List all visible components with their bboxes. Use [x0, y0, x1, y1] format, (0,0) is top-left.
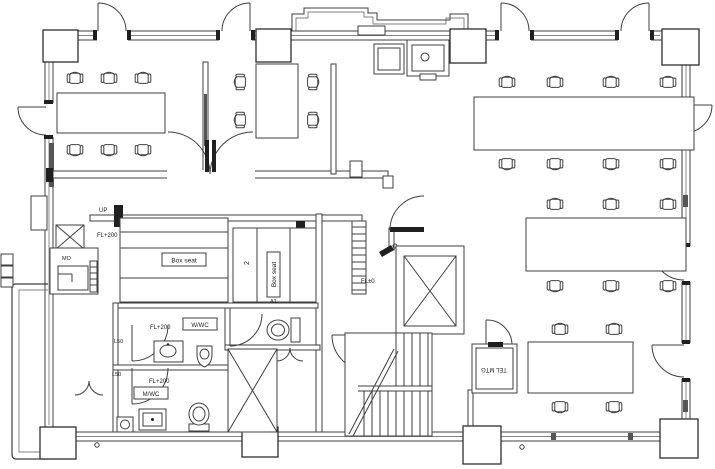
label-box-seat-v: Box seat	[271, 262, 278, 287]
wall-mid-right	[253, 171, 388, 178]
chair-icon	[499, 159, 515, 170]
label-women-wc: W/WC	[191, 323, 209, 329]
chair-icon	[135, 72, 151, 83]
chair-icon	[606, 323, 622, 334]
chair-icon	[552, 323, 568, 334]
chair-icon	[547, 159, 563, 170]
label-l50-upper: L50	[114, 339, 123, 345]
column	[662, 29, 699, 65]
column	[450, 29, 486, 63]
column	[660, 419, 698, 458]
chair-icon	[660, 281, 676, 292]
exterior-ledge	[1, 278, 13, 287]
meeting-room-1	[57, 72, 165, 156]
door-jamb	[46, 168, 53, 182]
door-swing-icon	[230, 314, 262, 346]
label-service-box: MO	[62, 256, 72, 262]
floor-plan-drawing: UP FL+200 Box seat Box seat 2 A1 FL+200 …	[0, 0, 715, 469]
chair-icon	[547, 76, 563, 87]
chair-icon	[499, 76, 515, 87]
door-swing-icon	[390, 196, 424, 232]
toilet-icon	[267, 318, 300, 342]
service-shaft	[228, 349, 277, 432]
service-box	[50, 248, 98, 294]
balcony-left	[1, 196, 48, 459]
wall-wc-top	[113, 303, 318, 308]
sink-icon	[154, 341, 183, 362]
double-door-swing-icon	[168, 132, 253, 174]
label-tel-mtg: TEL MTG	[481, 366, 507, 372]
meeting-room-2	[234, 64, 362, 177]
bottom-wall-mullion	[551, 433, 556, 440]
wall-mid-left	[53, 171, 168, 178]
kitchenette-unit	[58, 266, 88, 290]
sink-icon	[139, 409, 166, 430]
partition-glazing	[204, 94, 207, 146]
exterior-ledge	[1, 254, 13, 265]
chair-icon	[606, 402, 622, 413]
chair-icon	[660, 159, 676, 170]
chair-icon	[660, 198, 676, 209]
open-office-table-1	[474, 76, 694, 170]
label-fl200-entry: FL+200	[97, 233, 118, 239]
label-l50-lower: L50	[112, 372, 121, 378]
door-jamb	[488, 342, 503, 347]
chair-icon	[101, 72, 117, 83]
exterior-ledge	[1, 266, 13, 277]
wall-corridor-west	[316, 214, 322, 432]
urinal-icon	[197, 346, 212, 367]
door-swing-icon	[486, 320, 512, 345]
label-box-seat-h: Box seat	[171, 258, 196, 265]
wall-jog	[383, 176, 393, 188]
label-fl200-women: FL+200	[150, 325, 171, 331]
wall-mwc-top	[113, 365, 233, 370]
counter	[358, 26, 385, 35]
chair-icon	[603, 159, 619, 170]
chair-icon	[603, 198, 619, 209]
chair-icon	[308, 74, 319, 90]
chair-icon	[67, 72, 83, 83]
mop-sink-icon	[117, 417, 133, 432]
chair-icon	[552, 402, 568, 413]
meeting-table-icon	[57, 93, 165, 133]
bottom-wall-mullion	[628, 433, 633, 440]
left-wall-bump	[31, 196, 47, 230]
door-closer-hardware	[379, 245, 394, 257]
column	[40, 427, 76, 459]
chair-icon	[234, 74, 245, 90]
chair-icon	[547, 281, 563, 292]
right-wall-mullion	[683, 400, 688, 412]
meeting-table-icon	[526, 218, 686, 271]
open-office-table-3	[528, 323, 633, 413]
stairwell	[345, 333, 432, 436]
open-office-table-2	[526, 198, 686, 292]
meeting-table-icon	[474, 97, 694, 150]
wall-room2-right	[331, 64, 336, 174]
label-up: UP	[99, 208, 107, 214]
chair-icon	[234, 112, 245, 128]
meeting-table-icon	[256, 64, 298, 138]
chair-icon	[603, 76, 619, 87]
double-door-swing-icon	[75, 381, 103, 395]
column	[256, 29, 291, 62]
chair-icon	[603, 281, 619, 292]
chair-icon	[67, 145, 83, 156]
column	[43, 30, 78, 62]
label-fl-zero: FL±0	[361, 279, 375, 285]
sideboard	[350, 161, 362, 177]
toilet-icon	[189, 403, 209, 431]
floor-plan-page: UP FL+200 Box seat Box seat 2 A1 FL+200 …	[0, 0, 715, 469]
door-stopper	[520, 445, 524, 449]
elevator-shaft	[396, 246, 464, 334]
door-stopper	[95, 443, 99, 447]
duct-shaft	[56, 225, 84, 249]
wall-wc-stall	[225, 308, 230, 349]
box-seat-area	[120, 218, 316, 302]
chair-icon	[101, 145, 117, 156]
label-section-2: 2	[244, 261, 251, 265]
right-wall-mullion	[683, 195, 688, 207]
chair-icon	[660, 76, 676, 87]
chair-icon	[308, 112, 319, 128]
label-section-a1: A1	[270, 299, 277, 305]
meeting-table-icon	[528, 342, 633, 393]
chair-icon	[135, 145, 151, 156]
chair-icon	[547, 198, 563, 209]
label-fl200-men: FL+200	[149, 379, 170, 385]
column	[463, 426, 501, 464]
label-men-wc: M/WC	[143, 392, 160, 398]
